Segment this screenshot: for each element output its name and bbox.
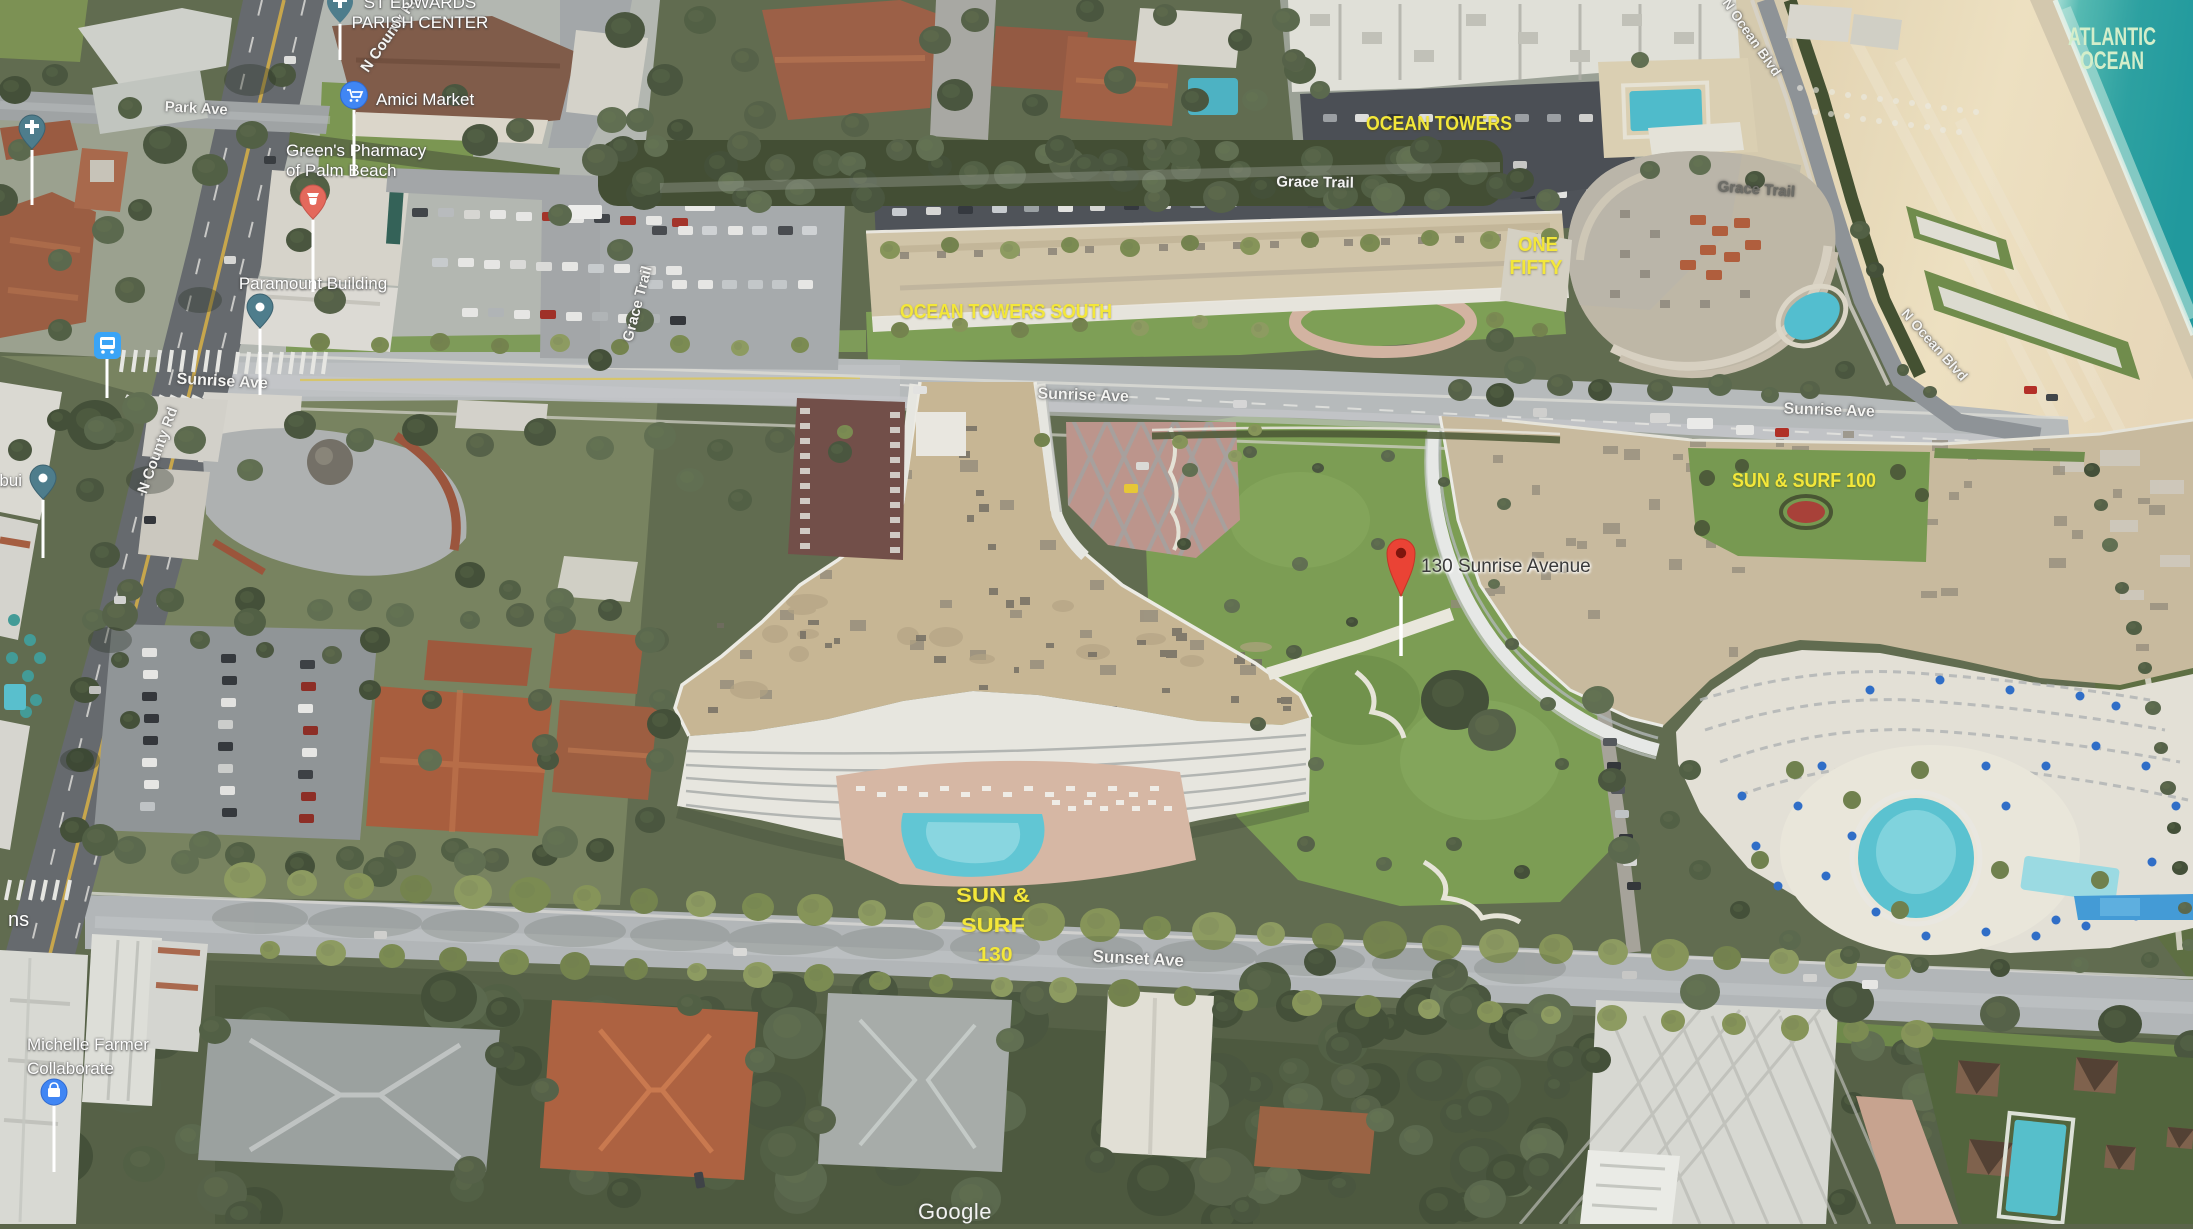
svg-text:Sunrise Ave: Sunrise Ave	[1783, 400, 1875, 420]
svg-text:FIFTY: FIFTY	[1510, 257, 1564, 279]
svg-text:Green's Pharmacy: Green's Pharmacy	[286, 141, 427, 160]
svg-text:PARISH CENTER: PARISH CENTER	[352, 13, 489, 32]
svg-text:Google: Google	[918, 1199, 992, 1224]
svg-text:ns: ns	[8, 909, 29, 931]
svg-text:OCEAN TOWERS SOUTH: OCEAN TOWERS SOUTH	[900, 301, 1112, 323]
svg-text:Amici Market: Amici Market	[376, 90, 475, 109]
svg-text:SUN &: SUN &	[956, 885, 1030, 907]
svg-text:SUN & SURF 100: SUN & SURF 100	[1732, 470, 1876, 492]
svg-text:ONE: ONE	[1518, 234, 1558, 256]
svg-text:Sunrise Ave: Sunrise Ave	[1037, 385, 1129, 405]
svg-text:bui: bui	[0, 471, 22, 490]
svg-text:ST EDWARDS: ST EDWARDS	[364, 0, 476, 12]
svg-text:130 Sunrise Avenue: 130 Sunrise Avenue	[1421, 556, 1591, 577]
svg-text:Michelle Farmer: Michelle Farmer	[27, 1035, 149, 1054]
svg-text:of Palm Beach: of Palm Beach	[286, 161, 397, 180]
svg-text:Collaborate: Collaborate	[27, 1059, 114, 1078]
svg-text:SURF: SURF	[961, 915, 1025, 937]
svg-text:OCEAN TOWERS: OCEAN TOWERS	[1366, 113, 1512, 135]
svg-text:Grace Trail: Grace Trail	[1276, 173, 1354, 191]
svg-text:OCEAN: OCEAN	[2080, 47, 2144, 75]
svg-text:130: 130	[978, 944, 1013, 966]
svg-text:Park Ave: Park Ave	[164, 98, 228, 118]
